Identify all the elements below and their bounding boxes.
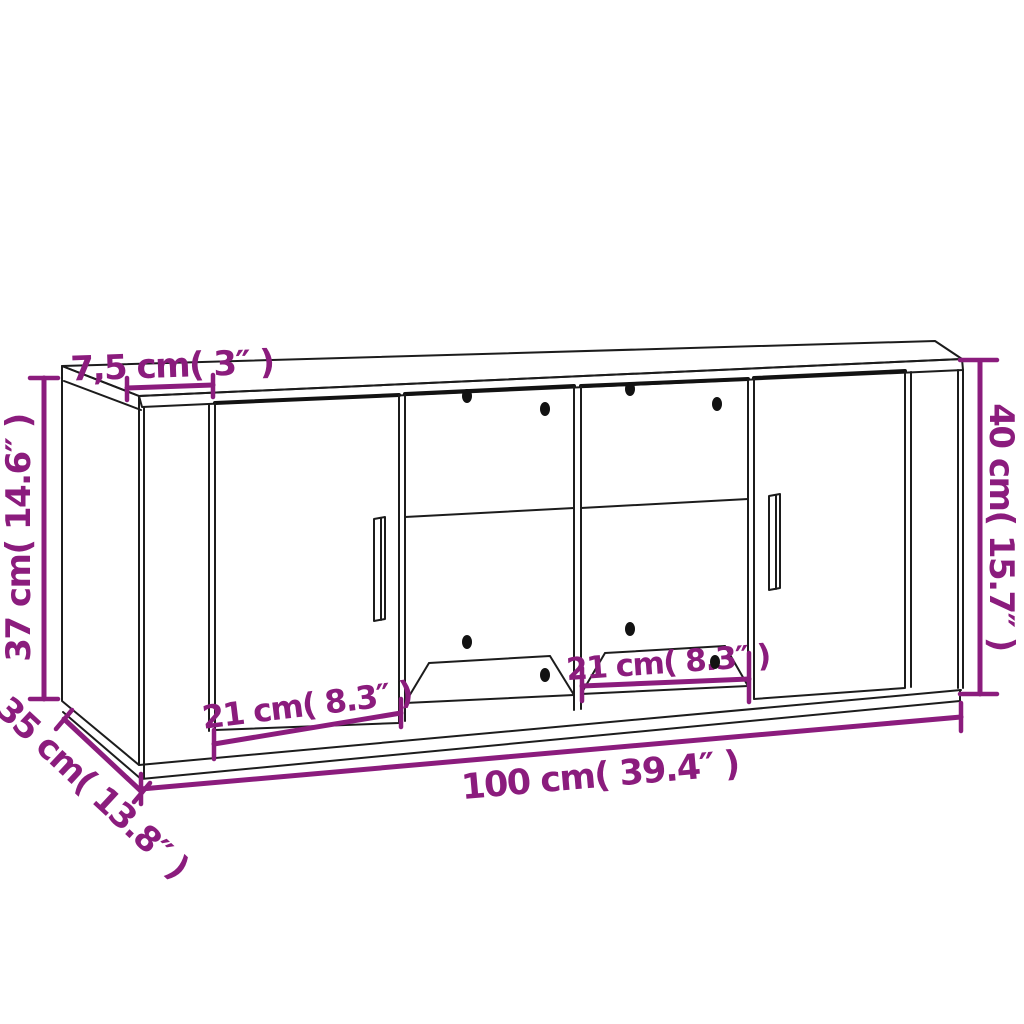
dimension-top-thickness-label: 7,5 cm( 3″ ) <box>70 342 275 389</box>
screw-holes <box>462 382 722 682</box>
cabinet-diagram-canvas: 7,5 cm( 3″ ) 37 cm( 14.6″ ) 35 cm( 13.8″… <box>0 0 1024 1024</box>
screw-hole <box>625 382 635 396</box>
compartment-1-shelf <box>405 508 574 517</box>
right-door-edges <box>748 372 911 699</box>
compartment-2-shelf <box>581 499 748 508</box>
dimension-height-right-label: 40 cm( 15.7″ ) <box>981 403 1021 651</box>
cabinet-drawing <box>62 341 963 779</box>
furniture-dimension-diagram: 7,5 cm( 3″ ) 37 cm( 14.6″ ) 35 cm( 13.8″… <box>0 0 1024 1024</box>
cabinet-left-side-panel <box>62 366 139 765</box>
left-door-handle <box>374 517 385 621</box>
screw-hole <box>625 622 635 636</box>
screw-hole <box>462 389 472 403</box>
dimension-height-left: 37 cm( 14.6″ ) <box>0 378 58 699</box>
dimension-door-width: 21 cm( 8.3″ ) <box>200 673 414 759</box>
screw-hole <box>710 655 720 669</box>
screw-hole <box>540 402 550 416</box>
front-right-corner-edges <box>958 370 963 688</box>
dimension-width-label: 100 cm( 39.4″ ) <box>460 744 741 808</box>
dimension-height-right: 40 cm( 15.7″ ) <box>960 360 1021 694</box>
screw-hole <box>540 668 550 682</box>
screw-hole <box>462 635 472 649</box>
screw-hole <box>712 397 722 411</box>
right-door-handle <box>769 494 780 590</box>
right-door <box>748 372 911 699</box>
dimension-height-left-label: 37 cm( 14.6″ ) <box>0 414 39 662</box>
